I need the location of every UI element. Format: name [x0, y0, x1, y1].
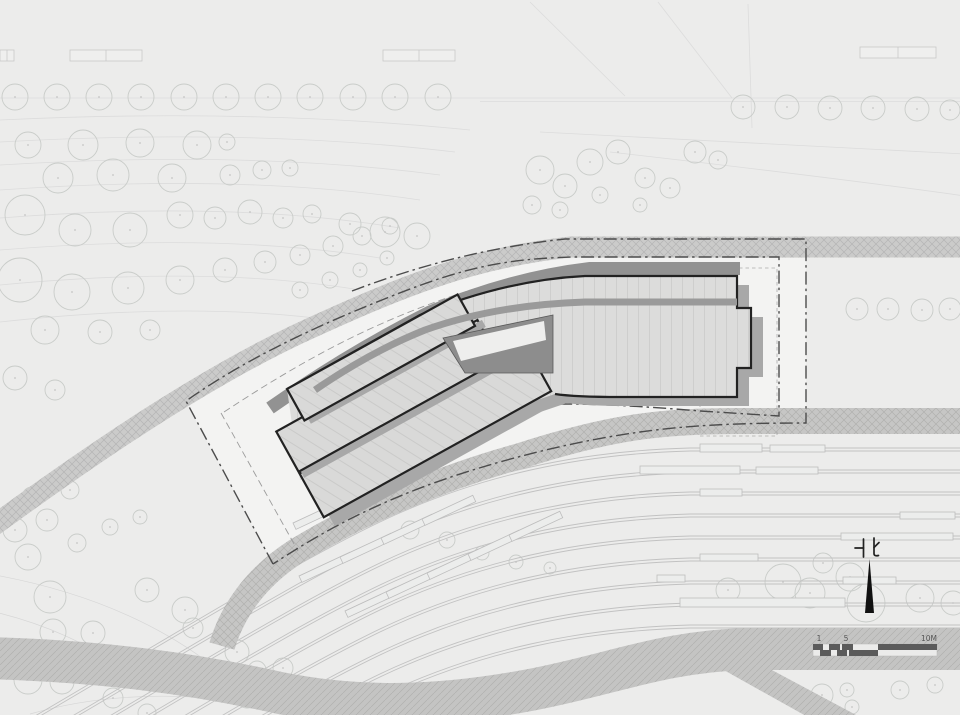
tree-center-dot	[14, 96, 16, 98]
tree-center-dot	[742, 106, 744, 108]
tree-center-dot	[44, 329, 46, 331]
tree-center-dot	[872, 107, 874, 109]
tree-center-dot	[196, 144, 198, 146]
tree-center-dot	[299, 289, 301, 291]
tree-center-dot	[127, 287, 129, 289]
tree-center-dot	[225, 96, 227, 98]
tree-center-dot	[109, 526, 111, 528]
tree-center-dot	[76, 542, 78, 544]
tree-center-dot	[437, 96, 439, 98]
tree-center-dot	[919, 597, 921, 599]
tree-center-dot	[846, 689, 848, 691]
tree-center-dot	[727, 589, 729, 591]
tree-center-dot	[786, 106, 788, 108]
tree-center-dot	[829, 107, 831, 109]
platform-segment	[756, 467, 818, 474]
tree-center-dot	[549, 567, 551, 569]
tree-center-dot	[887, 308, 889, 310]
tree-center-dot	[236, 651, 238, 653]
tree-center-dot	[822, 562, 824, 564]
tree-center-dot	[192, 627, 194, 629]
tree-center-dot	[139, 516, 141, 518]
tree-center-dot	[446, 539, 448, 541]
tree-center-dot	[809, 592, 811, 594]
platform-segment	[680, 598, 845, 607]
drawing-canvas: 北 1 5 10M	[0, 0, 960, 715]
tree-center-dot	[531, 204, 533, 206]
tree-center-dot	[389, 225, 391, 227]
tree-center-dot	[717, 159, 719, 161]
tree-center-dot	[27, 144, 29, 146]
tree-center-dot	[851, 706, 853, 708]
tree-center-dot	[184, 609, 186, 611]
tree-center-dot	[112, 697, 114, 699]
tree-center-dot	[149, 329, 151, 331]
site-plan-drawing: 北 1 5 10M	[0, 0, 960, 715]
tree-center-dot	[249, 211, 251, 213]
scale-tick-1: 1	[817, 634, 822, 643]
tree-center-dot	[644, 177, 646, 179]
tree-center-dot	[352, 96, 354, 98]
tree-center-dot	[214, 217, 216, 219]
tree-center-dot	[98, 96, 100, 98]
tree-center-dot	[921, 309, 923, 311]
tree-center-dot	[46, 519, 48, 521]
tree-center-dot	[539, 169, 541, 171]
tree-center-dot	[329, 279, 331, 281]
tree-center-dot	[57, 177, 59, 179]
tree-center-dot	[52, 631, 54, 633]
tree-center-dot	[394, 96, 396, 98]
platform-segment	[841, 533, 953, 540]
tree-center-dot	[179, 279, 181, 281]
tree-center-dot	[599, 194, 601, 196]
tree-center-dot	[282, 667, 284, 669]
tree-center-dot	[140, 96, 142, 98]
platform-segment	[770, 445, 825, 452]
tree-center-dot	[856, 308, 858, 310]
tree-center-dot	[384, 231, 386, 233]
tree-center-dot	[899, 689, 901, 691]
platform-segment	[640, 466, 740, 474]
platform-segment	[900, 512, 955, 519]
tree-center-dot	[14, 377, 16, 379]
platform-segment	[700, 444, 762, 452]
tree-center-dot	[934, 684, 936, 686]
tree-center-dot	[54, 389, 56, 391]
tree-center-dot	[289, 167, 291, 169]
tree-center-dot	[146, 589, 148, 591]
tree-center-dot	[267, 96, 269, 98]
tree-center-dot	[669, 187, 671, 189]
tree-center-dot	[129, 229, 131, 231]
tree-center-dot	[229, 174, 231, 176]
tree-center-dot	[171, 177, 173, 179]
tree-center-dot	[361, 235, 363, 237]
scale-tick-5: 5	[844, 634, 849, 643]
tree-center-dot	[24, 214, 26, 216]
tree-center-dot	[71, 291, 73, 293]
tree-center-dot	[49, 596, 51, 598]
tree-center-dot	[56, 96, 58, 98]
tree-center-dot	[82, 144, 84, 146]
tree-center-dot	[99, 331, 101, 333]
tree-center-dot	[949, 109, 951, 111]
tree-center-dot	[112, 174, 114, 176]
tree-center-dot	[589, 161, 591, 163]
tree-center-dot	[264, 261, 266, 263]
tree-center-dot	[359, 269, 361, 271]
tree-center-dot	[92, 632, 94, 634]
tree-center-dot	[14, 529, 16, 531]
tree-center-dot	[261, 169, 263, 171]
tree-center-dot	[74, 229, 76, 231]
tree-center-dot	[139, 142, 141, 144]
tree-center-dot	[309, 96, 311, 98]
tree-center-dot	[146, 712, 148, 714]
tree-center-dot	[224, 269, 226, 271]
tree-center-dot	[564, 185, 566, 187]
platform-segment	[700, 489, 742, 496]
tree-center-dot	[949, 308, 951, 310]
tree-center-dot	[639, 204, 641, 206]
tree-center-dot	[349, 223, 351, 225]
tree-center-dot	[183, 96, 185, 98]
tree-center-dot	[916, 108, 918, 110]
scale-tick-10m: 10M	[921, 634, 937, 643]
tree-center-dot	[226, 141, 228, 143]
tree-center-dot	[821, 694, 823, 696]
tree-center-dot	[282, 217, 284, 219]
tree-center-dot	[19, 279, 21, 281]
tree-center-dot	[559, 209, 561, 211]
tree-center-dot	[179, 214, 181, 216]
tree-center-dot	[27, 556, 29, 558]
tree-center-dot	[311, 213, 313, 215]
tree-center-dot	[69, 489, 71, 491]
platform-segment	[657, 575, 685, 582]
tree-center-dot	[332, 245, 334, 247]
tree-center-dot	[299, 254, 301, 256]
tree-center-dot	[694, 151, 696, 153]
tree-center-dot	[617, 151, 619, 153]
tree-center-dot	[386, 257, 388, 259]
tree-center-dot	[416, 235, 418, 237]
platform-segment	[700, 554, 758, 561]
